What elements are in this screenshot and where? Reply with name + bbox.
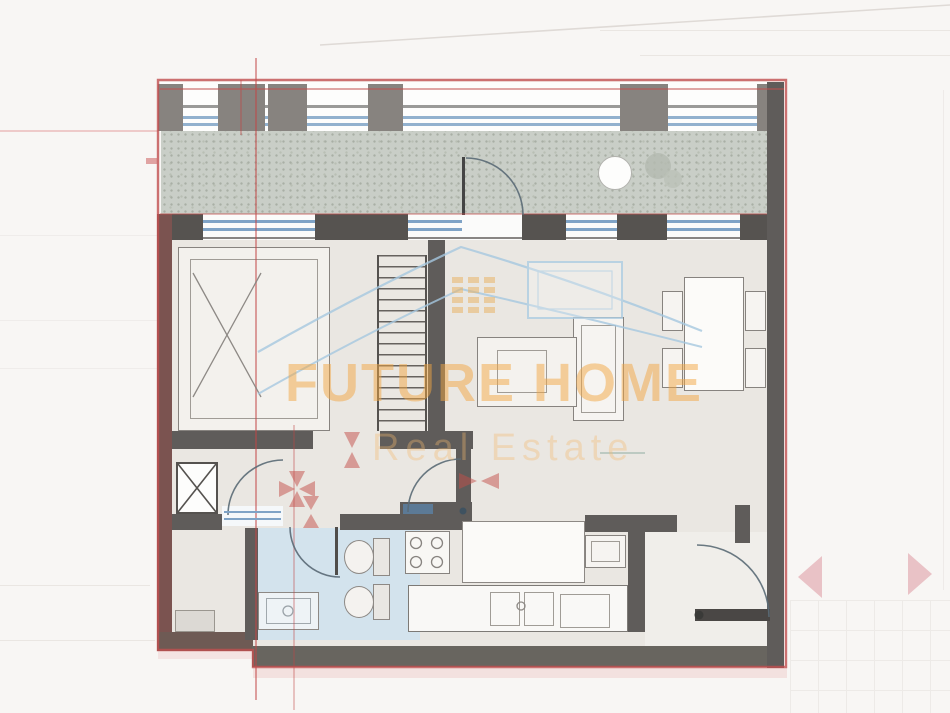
window-pier — [522, 214, 566, 240]
boundary-glow — [158, 651, 253, 659]
toilet-bowl — [344, 540, 374, 574]
bg-line — [943, 90, 944, 590]
red-tick — [146, 158, 157, 164]
railing-pier — [368, 84, 403, 131]
red-inner-line — [160, 88, 784, 90]
red-grid-line-v — [293, 425, 295, 710]
railing-pier — [620, 84, 668, 131]
bg-tile-grid — [790, 600, 950, 713]
bg-line — [640, 55, 950, 56]
boundary-glow — [253, 668, 787, 678]
kitchen-table — [462, 521, 585, 583]
fridge-inner — [591, 541, 620, 562]
window-glass — [408, 228, 462, 231]
bidet-bowl — [344, 586, 374, 618]
kitchen-sink — [490, 592, 520, 626]
window-pier — [315, 214, 408, 240]
radiator — [403, 504, 433, 514]
dining-chair — [745, 291, 766, 331]
railing-pier — [158, 84, 183, 131]
right-wall — [767, 82, 784, 668]
window-pier — [740, 214, 767, 240]
bg-line — [0, 368, 157, 369]
dishwasher — [560, 594, 610, 628]
window-glass — [566, 220, 617, 223]
entrance-door-leaf — [695, 609, 770, 621]
kitchen-entry-wall — [628, 530, 645, 632]
stove — [405, 531, 450, 574]
bathroom-door-leaf — [335, 527, 338, 575]
red-grid-line-v — [255, 58, 257, 700]
window-pier — [617, 214, 667, 240]
balcony-plant — [664, 170, 682, 188]
bg-roof-line — [320, 5, 950, 45]
left-wall — [157, 214, 172, 651]
window-glass — [667, 228, 740, 231]
dining-chair — [745, 348, 766, 388]
bottom-wall-main — [252, 646, 767, 667]
railing-pier — [268, 84, 307, 131]
hall-bath-wall — [172, 514, 222, 530]
bg-line — [0, 585, 150, 586]
watermark-subtitle-text: Real Estate — [372, 427, 634, 470]
dining-chair — [662, 291, 683, 331]
bg-line — [0, 320, 157, 321]
railing-pier — [218, 84, 265, 131]
window-glass — [203, 228, 315, 231]
wc-vanity — [175, 610, 215, 632]
balcony-door-leaf — [462, 157, 465, 215]
window-sill-line — [172, 237, 767, 239]
window-glass — [667, 220, 740, 223]
shaft-box — [176, 462, 218, 514]
balcony-table — [598, 156, 632, 190]
vestibule-wall — [735, 505, 750, 543]
window-glass — [408, 220, 462, 223]
red-grid-line-h — [0, 130, 158, 132]
bottom-wall-left — [157, 632, 253, 651]
watermark-brand-text: FUTURE HOME — [285, 352, 703, 414]
bathroom-glass-threshold — [222, 506, 283, 526]
bg-line — [0, 235, 157, 236]
bg-line — [600, 30, 950, 31]
prev-arrow-icon — [798, 556, 822, 598]
shower-tray-inner — [266, 598, 311, 624]
window-glass — [566, 228, 617, 231]
floorplan-image: FUTURE HOME Real Estate — [0, 0, 950, 713]
red-inner-line — [160, 213, 767, 215]
toilet-tank — [373, 538, 390, 576]
next-arrow-icon — [908, 553, 932, 595]
bidet-tank — [373, 584, 390, 620]
bedroom-hall-wall — [172, 431, 313, 449]
bg-line — [0, 640, 155, 641]
entry-floor — [645, 532, 767, 646]
kitchen-sink — [524, 592, 554, 626]
window-glass — [203, 220, 315, 223]
